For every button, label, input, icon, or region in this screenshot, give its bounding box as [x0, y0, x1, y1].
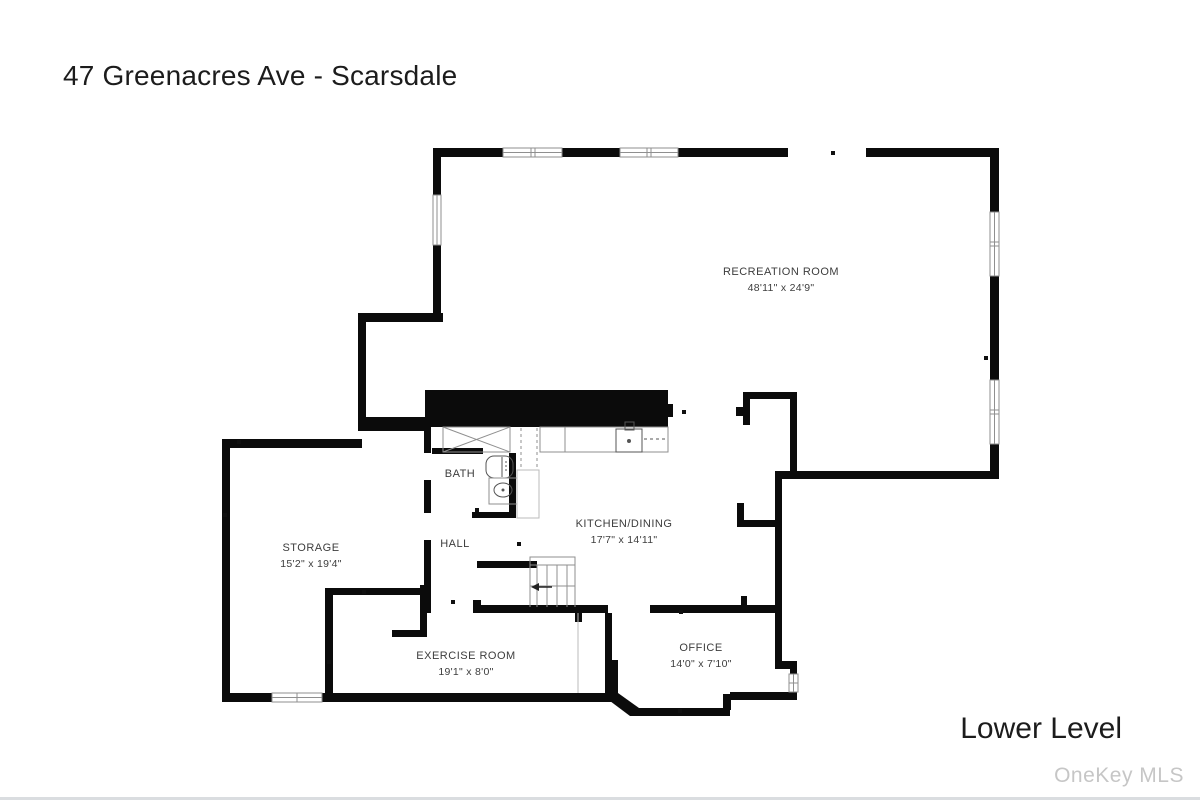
room-name: KITCHEN/DINING: [576, 516, 673, 533]
diagonal-wall: [610, 693, 639, 716]
room-name: HALL: [440, 536, 470, 553]
room-label-kitchen-dining: KITCHEN/DINING 17'7" x 14'11": [576, 516, 673, 548]
room-label-recreation: RECREATION ROOM 48'11" x 24'9": [723, 264, 839, 296]
room-name: OFFICE: [670, 640, 732, 657]
level-label: Lower Level: [960, 712, 1122, 746]
room-label-office: OFFICE 14'0" x 7'10": [670, 640, 732, 672]
room-name: RECREATION ROOM: [723, 264, 839, 281]
window-office: [789, 674, 798, 692]
room-label-exercise: EXERCISE ROOM 19'1" x 8'0": [416, 648, 515, 680]
walls: [222, 148, 999, 716]
kitchen-counter: [540, 422, 668, 452]
room-dims: 17'7" x 14'11": [576, 533, 673, 549]
room-label-bath: BATH: [445, 466, 476, 483]
floor-plan-drawing: [0, 0, 1200, 800]
window-top-2: [620, 148, 678, 157]
stair-direction-arrow: [531, 583, 552, 591]
toilet-fixture: [486, 456, 513, 478]
window-right-1: [990, 212, 999, 276]
room-dims: 48'11" x 24'9": [723, 281, 839, 297]
window-left: [433, 195, 441, 245]
staircase: [530, 557, 575, 607]
room-label-storage: STORAGE 15'2" x 19'4": [280, 540, 342, 572]
room-name: STORAGE: [280, 540, 342, 557]
room-name: BATH: [445, 466, 476, 483]
closet-dashed: [517, 428, 539, 518]
room-name: EXERCISE ROOM: [416, 648, 515, 665]
room-label-hall: HALL: [440, 536, 470, 553]
window-storage: [272, 693, 322, 702]
window-right-2: [990, 380, 999, 444]
room-dims: 14'0" x 7'10": [670, 657, 732, 673]
room-dims: 19'1" x 8'0": [416, 665, 515, 681]
room-dims: 15'2" x 19'4": [280, 557, 342, 573]
watermark-onekey-mls: OneKey MLS: [1054, 764, 1184, 788]
window-top-1: [503, 148, 562, 157]
floor-plan-page: 47 Greenacres Ave - Scarsdale: [0, 0, 1200, 800]
